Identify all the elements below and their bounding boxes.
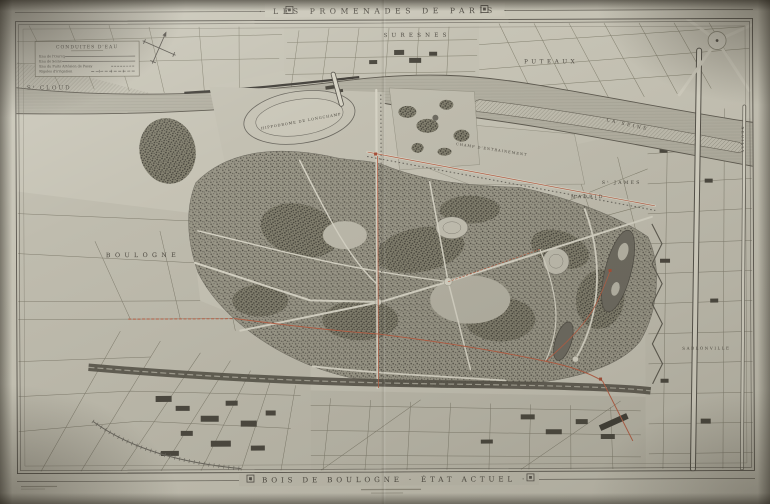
legend-box: CONDUITES D'EAU Eau de l'Ourcq Eau de Se… <box>35 41 139 76</box>
bagatelle-garden <box>436 217 468 239</box>
label-st-cloud: Sᵗ CLOUD <box>27 84 72 91</box>
label-sablonville: SABLONVILLE <box>682 345 730 350</box>
legend-title: CONDUITES D'EAU <box>56 44 118 50</box>
label-st-james: Sᵗ JAMES <box>602 180 642 186</box>
map-plate: Sᵗ CLOUD SURESNES PUTEAUX BOULOGNE MADRI… <box>0 0 770 504</box>
map-content: Sᵗ CLOUD SURESNES PUTEAUX BOULOGNE MADRI… <box>15 18 755 471</box>
legend-item-label: Eau du Puits Artésien de Passy <box>39 64 92 68</box>
label-neuilly: NEUILLY <box>740 126 744 153</box>
legend-item-label: Rigoles d'irrigation <box>39 69 73 73</box>
legend-item-label: Eau de Seine <box>39 59 62 63</box>
label-boulogne: BOULOGNE <box>106 252 180 259</box>
map-sheet: Sᵗ CLOUD SURESNES PUTEAUX BOULOGNE MADRI… <box>0 0 770 504</box>
label-puteaux: PUTEAUX <box>524 59 578 65</box>
pre-catelan <box>543 248 569 274</box>
label-suresnes: SURESNES <box>383 33 450 39</box>
legend-item-label: Eau de l'Ourcq <box>39 54 66 58</box>
label-madrid: MADRID <box>571 194 605 200</box>
series-title: · LES PROMENADES DE PARIS · <box>259 6 511 16</box>
sheet-title: · BOIS DE BOULOGNE · ÉTAT ACTUEL · <box>250 474 528 484</box>
map-photograph: Sᵗ CLOUD SURESNES PUTEAUX BOULOGNE MADRI… <box>0 0 770 504</box>
